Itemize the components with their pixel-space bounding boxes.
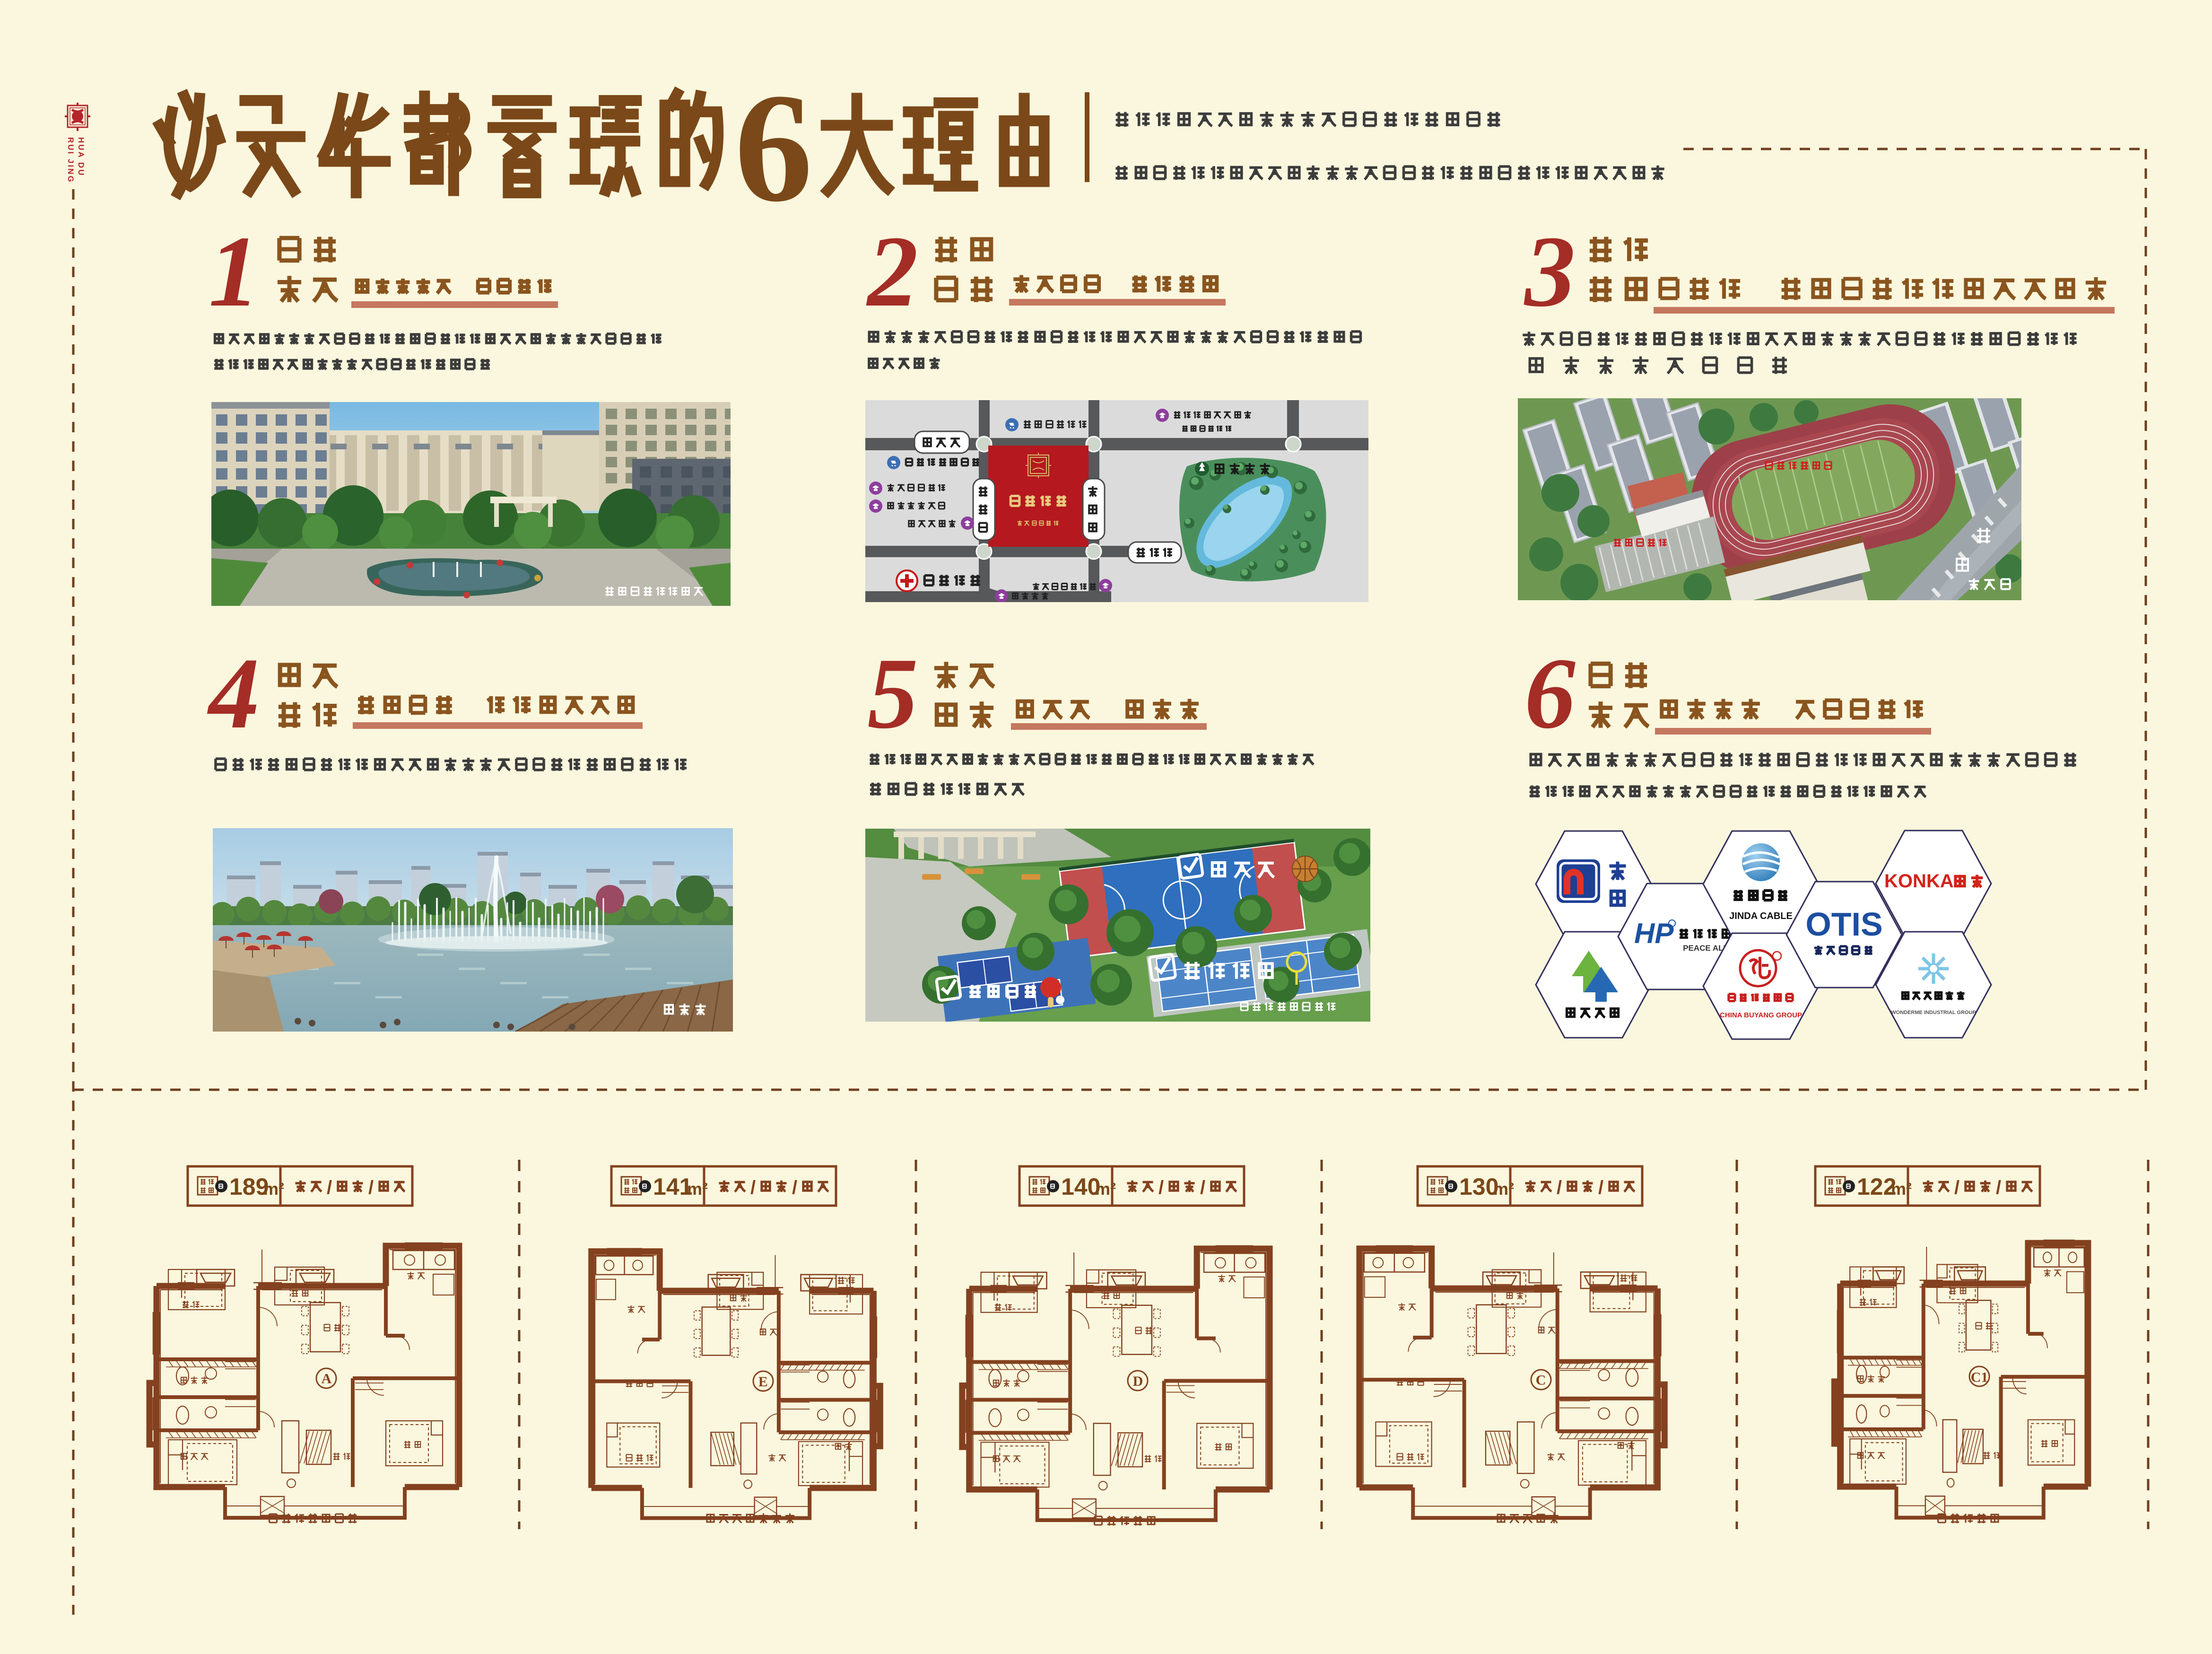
svg-text:141: 141: [653, 1173, 692, 1200]
svg-text:OTIS: OTIS: [1805, 906, 1882, 943]
svg-text:2: 2: [866, 215, 918, 328]
svg-text:6: 6: [1524, 637, 1576, 750]
svg-text:C1: C1: [1971, 1369, 1988, 1385]
svg-text:CHINA BUYANG GROUP: CHINA BUYANG GROUP: [1720, 1011, 1802, 1019]
svg-text:RUI JING: RUI JING: [66, 137, 75, 184]
svg-text:KONKA: KONKA: [1884, 871, 1954, 892]
svg-text:m²: m²: [263, 1179, 284, 1199]
svg-text:/: /: [1158, 1177, 1164, 1198]
svg-text:/: /: [327, 1177, 332, 1198]
svg-text:E: E: [758, 1374, 768, 1390]
svg-text:/: /: [1557, 1177, 1562, 1198]
svg-text:m²: m²: [1493, 1179, 1514, 1199]
svg-text:m²: m²: [1891, 1179, 1912, 1199]
svg-text:A: A: [322, 1371, 332, 1387]
svg-text:189: 189: [229, 1173, 269, 1200]
svg-text:/: /: [1996, 1177, 2001, 1198]
svg-text:m²: m²: [687, 1179, 708, 1199]
svg-text:/: /: [1200, 1177, 1205, 1198]
svg-text:D: D: [1133, 1374, 1143, 1389]
svg-text:HUA DU: HUA DU: [77, 137, 86, 176]
svg-text:/: /: [792, 1177, 797, 1198]
svg-text:3: 3: [1524, 215, 1576, 328]
svg-text:WONDERME INDUSTRIAL GROUP: WONDERME INDUSTRIAL GROUP: [1891, 1010, 1976, 1015]
svg-text:/: /: [750, 1177, 756, 1198]
svg-text:/: /: [1954, 1177, 1959, 1198]
svg-text:/: /: [368, 1177, 374, 1198]
svg-text:6: 6: [735, 61, 813, 234]
svg-text:5: 5: [867, 637, 918, 750]
svg-text:1: 1: [209, 215, 260, 328]
svg-text:122: 122: [1857, 1173, 1896, 1200]
svg-text:m²: m²: [1095, 1179, 1116, 1199]
svg-text:4: 4: [207, 637, 260, 750]
svg-text:/: /: [1598, 1177, 1603, 1198]
svg-text:130: 130: [1459, 1173, 1498, 1200]
svg-text:HP: HP: [1634, 918, 1674, 949]
svg-text:140: 140: [1061, 1173, 1100, 1200]
svg-text:JINDA CABLE: JINDA CABLE: [1729, 911, 1793, 921]
svg-text:C: C: [1536, 1373, 1546, 1388]
